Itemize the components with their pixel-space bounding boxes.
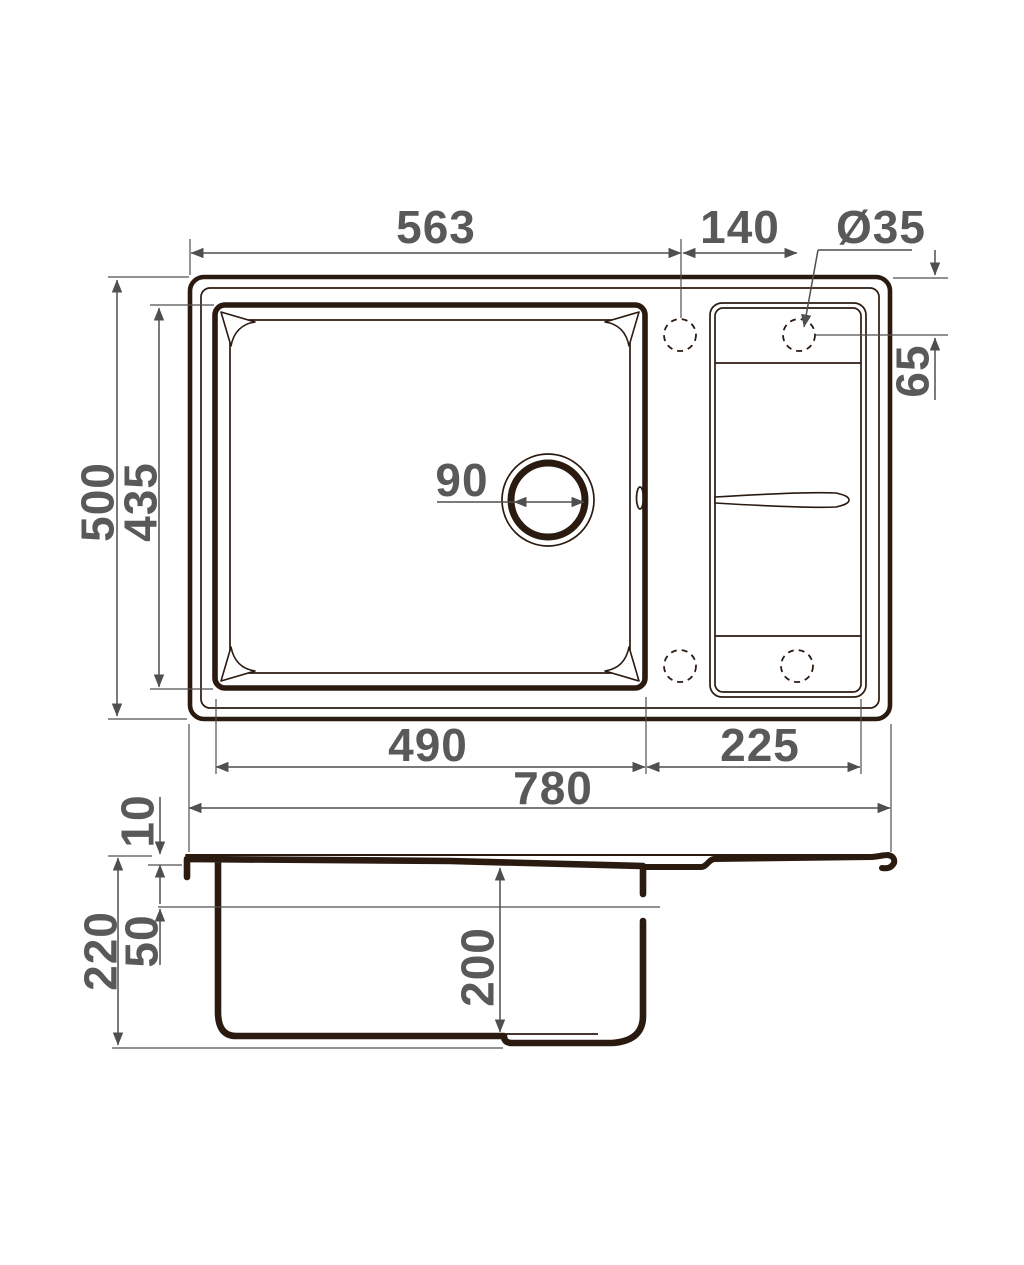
faucet-hole: [664, 650, 696, 682]
side-view: [186, 855, 894, 1043]
sink-dimension-drawing: 563 140 Ø35 500 435 65 90 490 225 780: [0, 0, 1024, 1265]
bowl-section: [187, 859, 643, 1043]
drainboard-section: [643, 855, 894, 868]
faucet-hole: [783, 319, 815, 351]
dim-label-435: 435: [115, 462, 167, 542]
dim-label-225: 225: [720, 719, 800, 771]
drain-outer-circle: [502, 454, 594, 546]
dim-label-490: 490: [388, 719, 468, 771]
dim-label-hole-diameter: Ø35: [836, 201, 926, 253]
bowl-corner-chamfer: [221, 647, 255, 681]
bowl-inner-line: [230, 320, 630, 673]
dim-label-780: 780: [513, 762, 593, 814]
dim-label-140: 140: [700, 201, 780, 253]
drainboard-groove: [715, 493, 849, 508]
bowl-corner-chamfer: [605, 647, 639, 681]
dim-label-65: 65: [887, 344, 939, 397]
drain-ring: [511, 463, 585, 537]
dim-label-200: 200: [452, 927, 504, 1007]
bowl-corner-chamfer: [605, 312, 639, 346]
bowl-outline: [215, 305, 645, 688]
dim-label-90: 90: [435, 454, 488, 506]
faucet-hole: [781, 650, 813, 682]
dim-label-50: 50: [116, 914, 168, 967]
dim-label-563: 563: [396, 201, 476, 253]
faucet-hole: [664, 319, 696, 351]
bowl-corner-chamfer: [221, 312, 255, 346]
top-view: [190, 277, 890, 719]
dim-label-10: 10: [112, 794, 164, 847]
side-view-dimensions: 10 220 50 200: [75, 794, 660, 1048]
technical-drawing-canvas: 563 140 Ø35 500 435 65 90 490 225 780: [0, 0, 1024, 1265]
